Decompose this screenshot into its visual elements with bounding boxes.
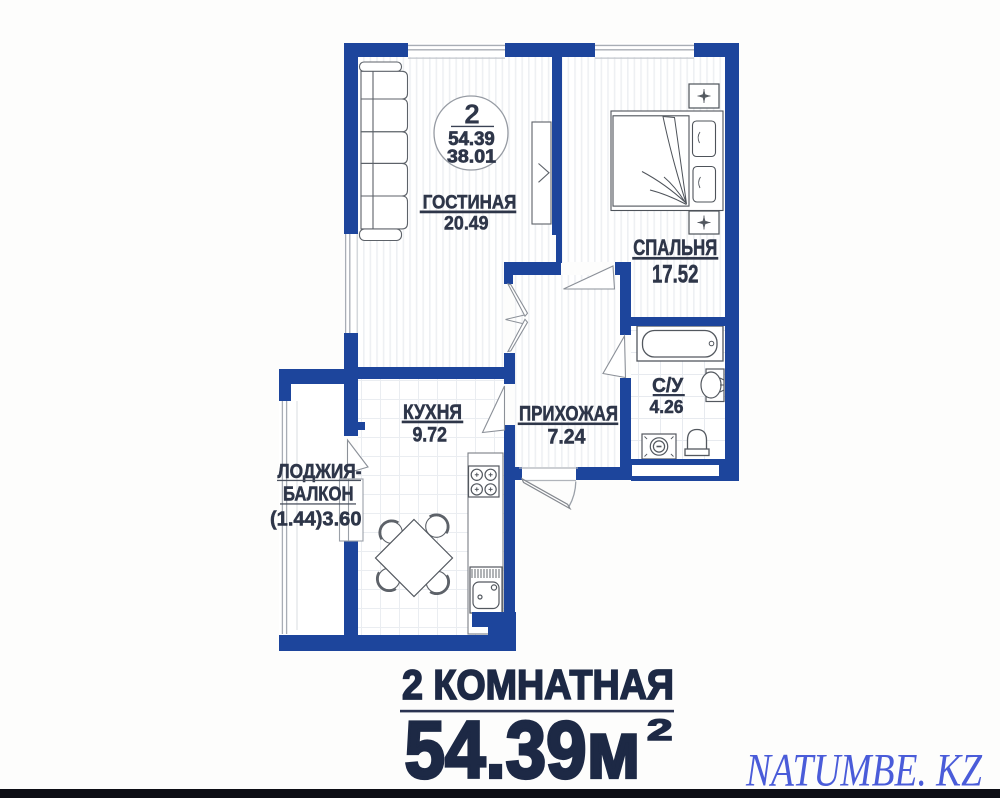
svg-text:ГОСТИНАЯ: ГОСТИНАЯ	[423, 192, 517, 214]
svg-text:9.72: 9.72	[412, 424, 447, 447]
svg-text:2: 2	[647, 714, 673, 747]
svg-text:БАЛКОН: БАЛКОН	[283, 483, 354, 506]
svg-text:ПРИХОЖАЯ: ПРИХОЖАЯ	[519, 403, 618, 426]
svg-text:2: 2	[464, 98, 480, 129]
svg-text:7.24: 7.24	[548, 425, 586, 448]
svg-text:NATUMBE. KZ: NATUMBE. KZ	[745, 745, 982, 797]
svg-text:38.01: 38.01	[447, 146, 496, 167]
svg-text:2 КОМНАТНАЯ: 2 КОМНАТНАЯ	[402, 661, 674, 708]
svg-text:С/У: С/У	[652, 374, 683, 397]
svg-text:17.52: 17.52	[652, 261, 699, 289]
svg-text:20.49: 20.49	[444, 212, 489, 234]
svg-text:ЛОДЖИЯ-: ЛОДЖИЯ-	[278, 460, 362, 483]
svg-text:(1.44)3.60: (1.44)3.60	[270, 507, 362, 530]
svg-text:КУХНЯ: КУХНЯ	[403, 401, 462, 424]
svg-text:54.39м: 54.39м	[405, 705, 641, 795]
svg-text:СПАЛЬНЯ: СПАЛЬНЯ	[633, 235, 717, 260]
svg-text:4.26: 4.26	[650, 396, 684, 417]
